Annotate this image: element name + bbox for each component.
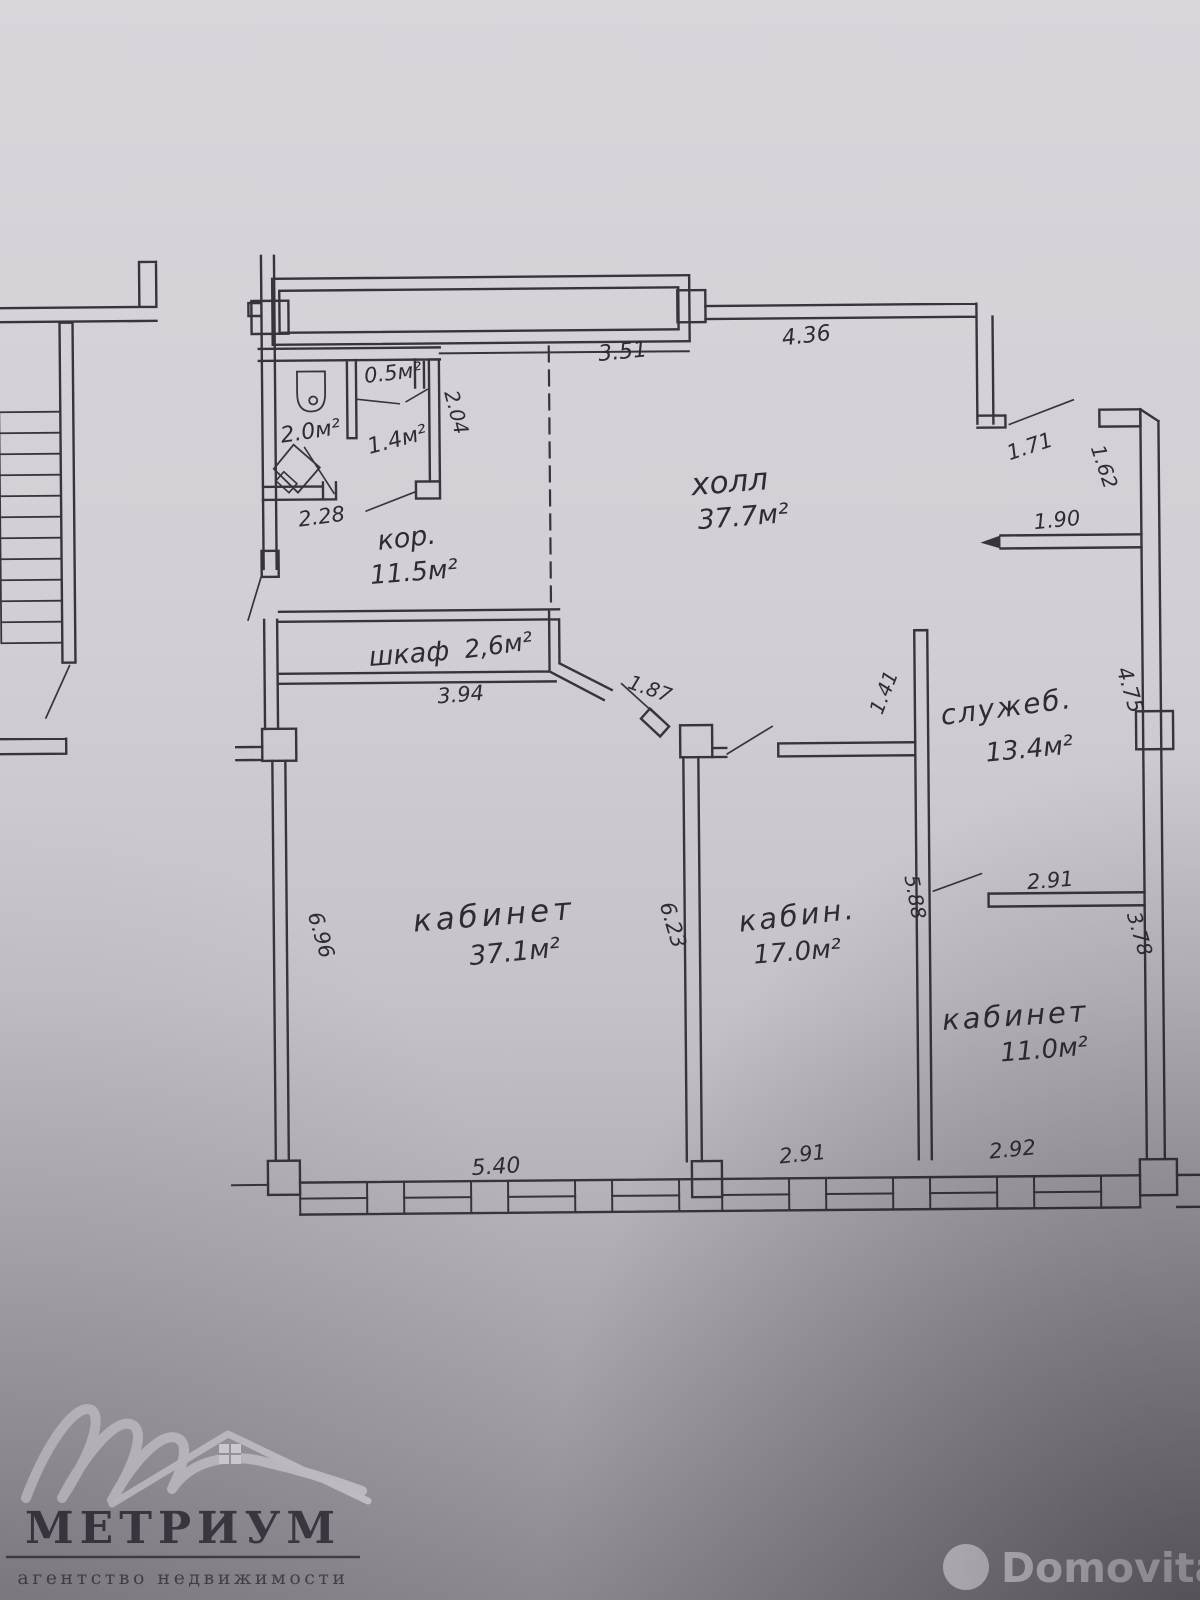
room-label-corridor: кор. xyxy=(376,519,438,556)
room-label-hall: холл xyxy=(689,461,770,503)
floor-plan-photo: холл 37.7м² кор. 11.5м² шкаф 2,6м² кабин… xyxy=(0,0,1200,1600)
dim-service-width: 2.91 xyxy=(1026,867,1075,895)
metrium-brand-text: МЕТРИУМ xyxy=(25,1503,341,1554)
dim-office-small-width: 2.92 xyxy=(988,1135,1037,1163)
floor-plan-svg: холл 37.7м² кор. 11.5м² шкаф 2,6м² кабин… xyxy=(0,0,1200,1600)
room-label-wardrobe: шкаф xyxy=(368,636,451,673)
dim-window-top: 3.51 xyxy=(597,337,648,367)
dim-wardrobe-width: 3.94 xyxy=(436,681,485,709)
paper-background xyxy=(0,0,1200,1600)
domovita-dot-icon xyxy=(943,1544,989,1590)
domovita-brand-text: Domovita xyxy=(1001,1544,1200,1592)
metrium-tagline-text: агентство недвижимости xyxy=(17,1567,348,1589)
dim-office-large-width: 5.40 xyxy=(471,1153,521,1181)
dim-office-middle-width: 2.91 xyxy=(778,1140,827,1168)
dim-ledge-right: 1.90 xyxy=(1033,506,1082,534)
